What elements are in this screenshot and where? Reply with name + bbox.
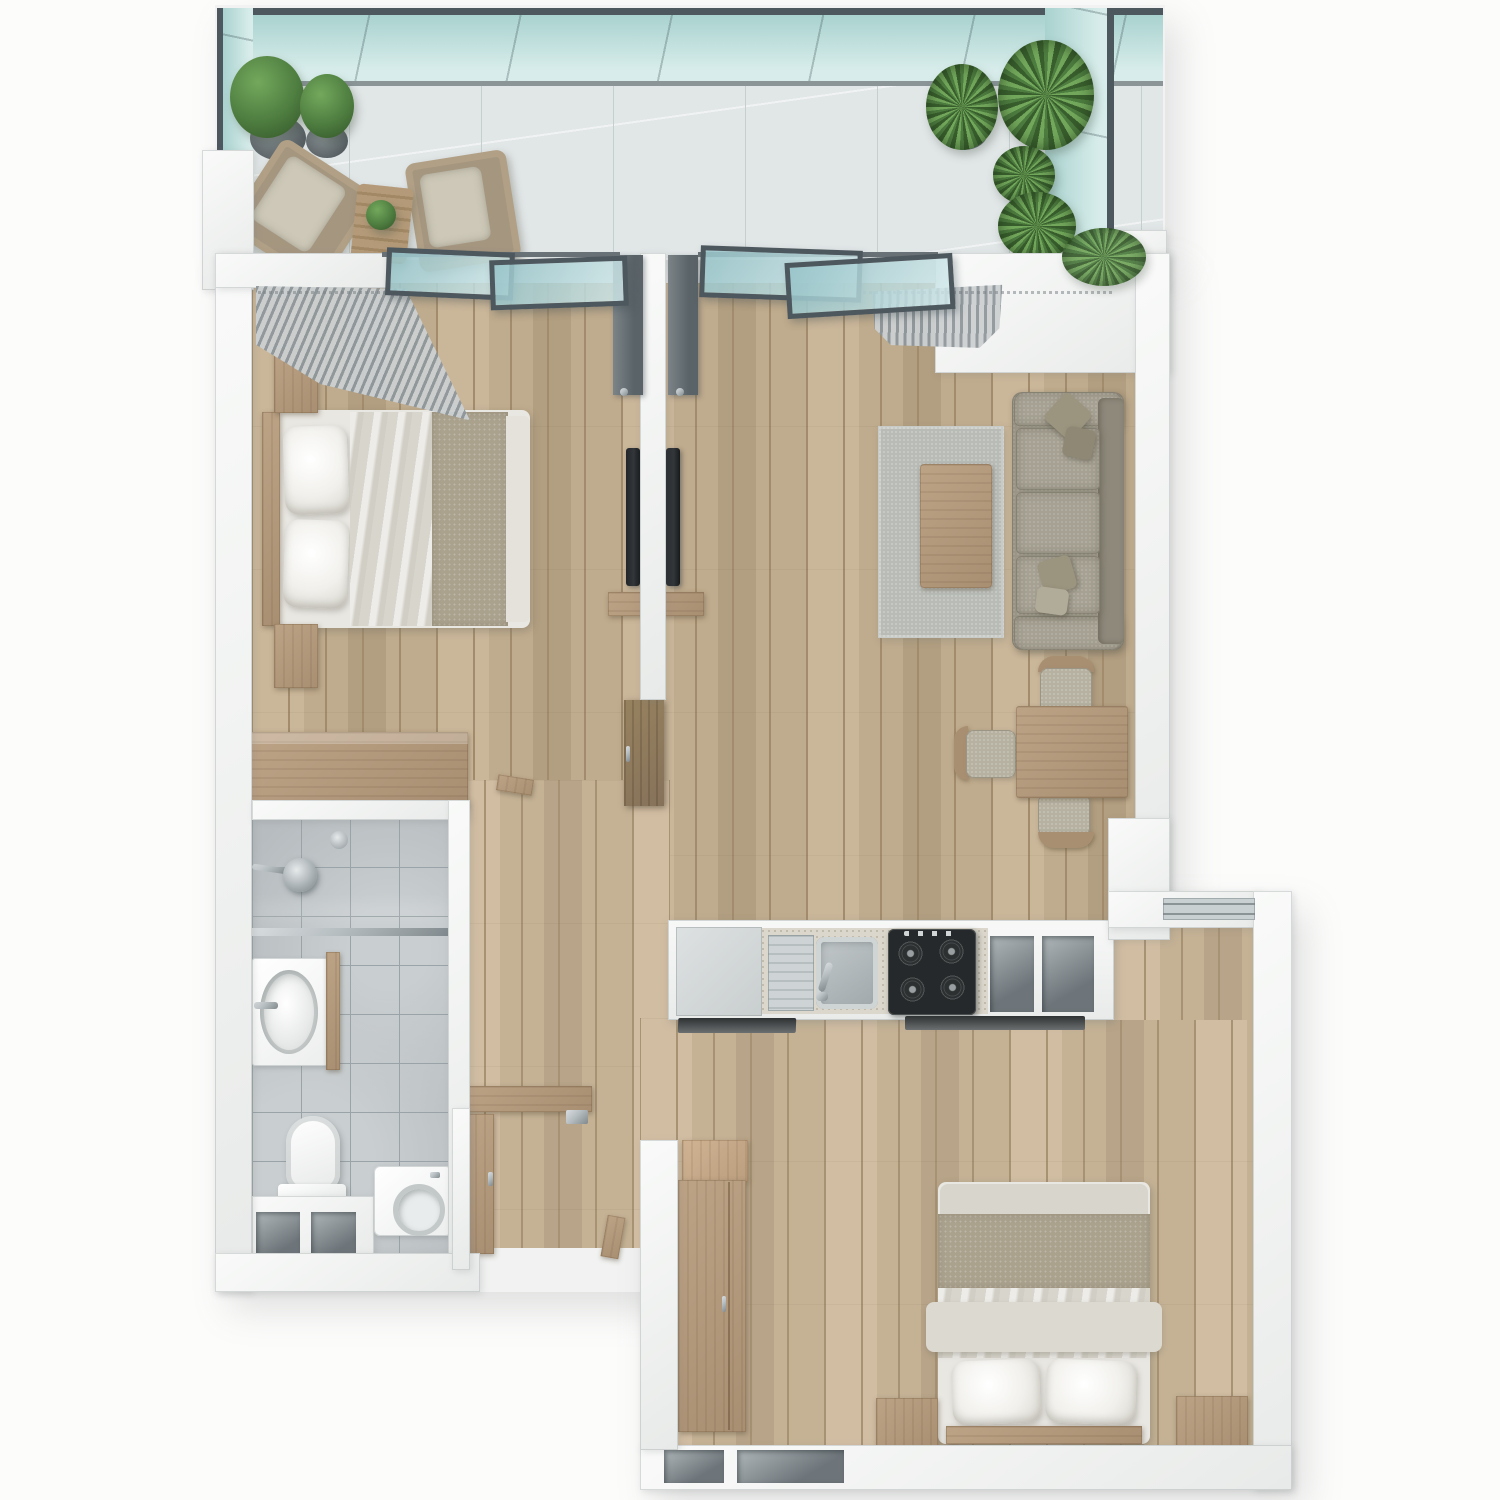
washer-latch — [430, 1172, 440, 1178]
table-plant — [366, 200, 396, 230]
palm-plant — [926, 64, 998, 150]
dining-chair — [966, 730, 1016, 778]
bedroom1-sliding-door — [489, 256, 629, 311]
wall-top-bedroom1 — [215, 253, 387, 288]
basin-faucet — [254, 1002, 278, 1009]
gas-hob — [888, 929, 976, 1015]
wall-bathroom-top — [252, 800, 470, 820]
hob-burner — [938, 938, 965, 965]
wall-bottom-left — [215, 1253, 480, 1292]
bed-footboard — [946, 1426, 1142, 1444]
wall-bedroom2-right — [1253, 891, 1292, 1490]
bed-pillow — [282, 519, 349, 609]
post-hook — [676, 388, 684, 396]
kitchen-counter — [668, 920, 1114, 1020]
hand-shower — [330, 831, 348, 849]
floor-plan-canvas — [0, 0, 1500, 1500]
toilet-seat — [286, 1116, 340, 1192]
cabinet-handle — [626, 746, 630, 762]
nightstand — [876, 1398, 938, 1450]
shower-glass-screen — [252, 928, 448, 936]
partition-cabinet — [624, 700, 664, 806]
bedroom1-tv — [626, 448, 640, 586]
bed-sheet — [350, 412, 434, 626]
counter-niche — [1042, 936, 1094, 1012]
bedroom2-niche — [664, 1450, 724, 1483]
bed-blanket — [938, 1214, 1150, 1288]
topiary-plant — [230, 56, 304, 138]
dining-chair — [1038, 794, 1090, 836]
sink-drainboard — [768, 935, 814, 1011]
palm-frond-overhang — [1062, 228, 1146, 286]
entry-door-frame — [452, 1108, 470, 1270]
bed-sheet-fold — [926, 1302, 1162, 1352]
chair-cushion — [250, 154, 348, 255]
sofa-back — [1098, 398, 1124, 644]
shoe-cabinet — [682, 1140, 748, 1182]
nightstand — [274, 624, 318, 688]
palm-plant — [998, 40, 1094, 150]
dining-table — [1016, 706, 1128, 798]
shelf-bracket — [566, 1110, 588, 1124]
wardrobe-handle — [722, 1296, 726, 1312]
wall-left — [215, 253, 252, 1292]
shower-head — [283, 858, 317, 892]
hob-knobs — [904, 931, 960, 936]
bedroom2-window — [1163, 898, 1255, 920]
hob-burner — [899, 976, 926, 1003]
base-cabinet-shadow — [905, 1016, 1085, 1030]
door-pocket-post — [668, 255, 698, 395]
dresser-top-edge — [248, 732, 468, 744]
sofa-seat-cushion — [1016, 492, 1100, 554]
door-handle — [488, 1172, 493, 1186]
bed-headboard — [262, 412, 280, 626]
hall-wall-shelf — [456, 1086, 592, 1112]
vanity-side-panel — [326, 952, 340, 1070]
washer-drum — [393, 1184, 445, 1236]
bedroom2-bed — [938, 1182, 1150, 1444]
washing-machine — [374, 1166, 452, 1236]
bed-top-band — [940, 1184, 1148, 1214]
sofa — [1012, 392, 1124, 650]
counter-niche — [990, 936, 1034, 1012]
dining-chair-back — [1038, 832, 1094, 848]
hob-burner — [939, 974, 966, 1001]
sofa-pillow — [1061, 425, 1097, 461]
faucet-base — [816, 992, 828, 1001]
coffee-table — [920, 464, 992, 588]
bed-pillow — [1045, 1358, 1137, 1425]
nightstand — [1176, 1396, 1248, 1450]
bed-blanket — [432, 412, 508, 626]
wardrobe — [678, 1180, 746, 1432]
bed-pillow — [951, 1358, 1041, 1425]
sofa-pillow — [1034, 586, 1069, 616]
bedroom2-niche — [737, 1450, 844, 1483]
fridge-cabinet — [676, 927, 762, 1016]
hob-burner — [897, 940, 924, 967]
bed-foot-fold — [506, 416, 530, 622]
wall-partition — [640, 253, 666, 700]
bedroom1-bed — [262, 410, 530, 628]
entry-door-leaf — [466, 1114, 494, 1254]
bedroom1-dresser — [248, 732, 468, 808]
vanity-basin — [260, 970, 318, 1054]
post-hook — [620, 388, 628, 396]
base-cabinet-shadow — [678, 1018, 797, 1033]
living-tv — [666, 448, 680, 586]
living-sliding-door — [784, 253, 955, 319]
topiary-plant — [300, 74, 354, 138]
wall-bedroom2-left — [640, 1140, 678, 1450]
bed-pillow — [282, 425, 349, 515]
wall-right — [1135, 253, 1170, 903]
wardrobe-door-gap — [728, 1182, 730, 1430]
chair-cushion — [419, 166, 492, 249]
